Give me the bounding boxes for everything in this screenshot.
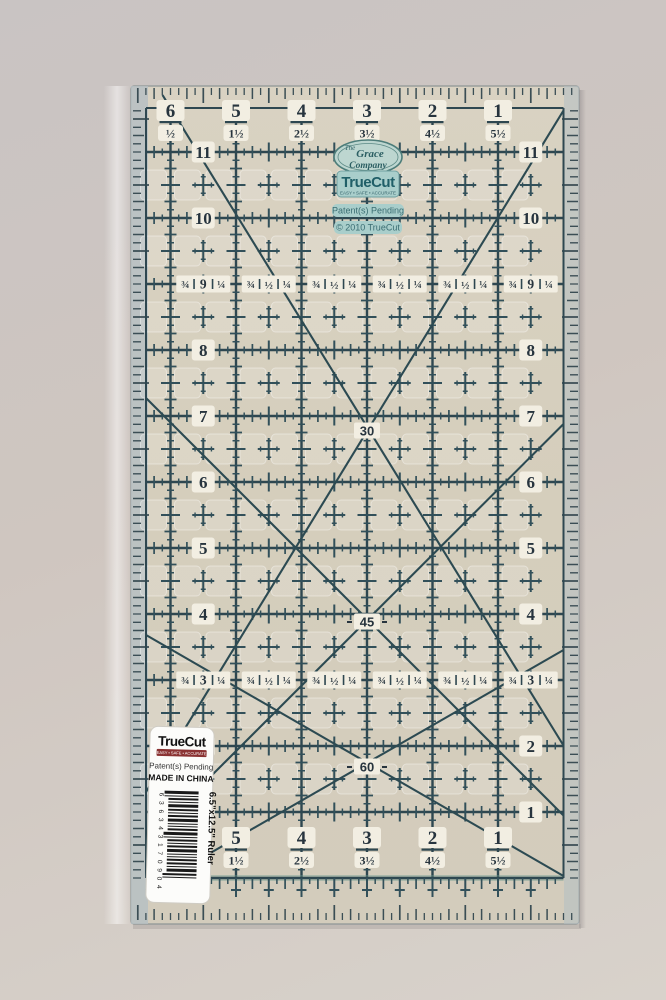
- row-number-left: 11: [195, 143, 211, 162]
- grace-company-logo: TheGraceCompany: [334, 140, 402, 174]
- fraction-separator: [277, 279, 279, 289]
- wall-highlight: [104, 86, 130, 924]
- fraction-left: ¾: [378, 279, 386, 291]
- fraction-separator: [521, 675, 523, 685]
- bottom-number: 2: [428, 828, 438, 849]
- ruler-shadow: [579, 90, 586, 928]
- fraction-separator: [455, 279, 457, 289]
- barcode-digit: 3: [156, 835, 163, 839]
- sticker-product-name: 6.5"x12.5" Ruler: [205, 792, 218, 865]
- fraction-separator: [343, 279, 345, 289]
- number-underline: [291, 849, 313, 851]
- fraction-right: ¼: [545, 279, 553, 291]
- top-fraction: 2½: [294, 127, 309, 141]
- fraction-separator: [408, 675, 410, 685]
- fraction-right: ¼: [479, 279, 487, 291]
- bottom-fraction: 4½: [425, 854, 440, 868]
- bottom-number: 5: [231, 828, 241, 849]
- truecut-logo-text: TrueCut: [341, 174, 395, 191]
- fraction-left: ¾: [509, 675, 517, 687]
- top-fraction: 1½: [229, 127, 244, 141]
- fraction-center: ½: [461, 280, 469, 292]
- row-number-right: 6: [527, 473, 536, 492]
- fraction-right: ¼: [283, 675, 291, 687]
- fraction-right: ¼: [414, 279, 422, 291]
- fraction-right: ¼: [348, 279, 356, 291]
- fraction-left: ¾: [378, 675, 386, 687]
- number-underline: [422, 849, 444, 851]
- fraction-separator: [455, 675, 457, 685]
- fraction-center: ½: [396, 676, 404, 688]
- fraction-right: ¼: [545, 675, 553, 687]
- angle-label-30: 30: [354, 423, 380, 439]
- row-number-right: 5: [527, 539, 536, 558]
- fraction-left: ¾: [181, 675, 189, 687]
- row-number-right: 10: [522, 209, 539, 228]
- fraction-right: ¼: [283, 279, 291, 291]
- fraction-separator: [259, 675, 261, 685]
- fraction-row-number: 9: [200, 277, 207, 292]
- barcode-digit: 3: [157, 801, 164, 805]
- patent-text: Patent(s) Pending: [332, 206, 404, 216]
- fraction-separator: [193, 675, 195, 685]
- angle-number: 30: [360, 424, 374, 439]
- right-edge-strip: [564, 86, 579, 924]
- ruler-shadow-bottom: [133, 924, 581, 929]
- row-number-right: 4: [527, 605, 536, 624]
- fraction-separator: [390, 675, 392, 685]
- row-number-left: 10: [195, 209, 212, 228]
- patent-badge: Patent(s) Pending: [332, 204, 404, 217]
- fraction-right: ¼: [348, 675, 356, 687]
- fraction-separator: [343, 675, 345, 685]
- number-underline: [225, 849, 247, 851]
- number-underline: [225, 121, 247, 123]
- angle-number: 60: [360, 760, 374, 775]
- barcode-digit: 0: [155, 877, 162, 881]
- top-fraction: 4½: [425, 127, 440, 141]
- fraction-left: ¾: [312, 675, 320, 687]
- ruler-photo: 6½51½42½33½24½15½51½42½33½24½15½11111010…: [0, 0, 666, 1000]
- angle-dash: [382, 766, 387, 768]
- fraction-right: ¼: [217, 675, 225, 687]
- number-underline: [422, 121, 444, 123]
- barcode-digit: 4: [155, 885, 162, 889]
- row-number-left: 8: [199, 341, 208, 360]
- fraction-separator: [539, 279, 541, 289]
- row-number-right: 2: [527, 737, 536, 756]
- fraction-center: ½: [265, 676, 273, 688]
- fraction-row-number: 3: [527, 673, 534, 688]
- fraction-separator: [212, 675, 214, 685]
- barcode-digit: 7: [156, 851, 163, 855]
- row-number-right: 1: [527, 803, 536, 822]
- fraction-separator: [259, 279, 261, 289]
- top-number: 2: [428, 101, 438, 122]
- bottom-number: 4: [297, 828, 307, 849]
- number-underline: [487, 121, 509, 123]
- fraction-left: ¾: [312, 279, 320, 291]
- top-number: 5: [231, 101, 241, 122]
- bottom-fraction: 1½: [229, 854, 244, 868]
- barcode-digit: 1: [156, 843, 163, 847]
- fraction-center: ½: [265, 280, 273, 292]
- number-underline: [160, 121, 182, 123]
- angle-number: 45: [360, 615, 374, 630]
- fraction-center: ½: [461, 676, 469, 688]
- top-fraction: 3½: [360, 127, 375, 141]
- logo-text: The: [345, 144, 356, 152]
- fraction-separator: [390, 279, 392, 289]
- row-number-left: 4: [199, 605, 208, 624]
- fraction-separator: [474, 675, 476, 685]
- top-number: 3: [362, 101, 372, 122]
- barcode-digit: 3: [157, 818, 164, 822]
- fraction-center: ½: [330, 676, 338, 688]
- bottom-number: 1: [493, 828, 503, 849]
- number-underline: [356, 849, 378, 851]
- row-number-right: 11: [523, 143, 539, 162]
- fraction-left: ¾: [443, 279, 451, 291]
- barcode-digit: 9: [155, 868, 162, 872]
- angle-dash: [347, 621, 352, 623]
- fraction-left: ¾: [247, 279, 255, 291]
- number-underline: [356, 121, 378, 123]
- fraction-left: ¾: [509, 279, 517, 291]
- fraction-separator: [324, 675, 326, 685]
- fraction-right: ¼: [217, 279, 225, 291]
- fraction-row-number: 3: [200, 673, 207, 688]
- top-fraction: ½: [166, 127, 175, 141]
- fraction-left: ¾: [247, 675, 255, 687]
- bottom-fraction: 3½: [360, 854, 375, 868]
- top-number: 6: [166, 101, 176, 122]
- copyright-text: © 2010 TrueCut: [336, 223, 400, 233]
- copyright-badge: © 2010 TrueCut: [334, 221, 402, 234]
- row-number-left: 5: [199, 539, 208, 558]
- barcode-digit: 6: [157, 809, 164, 813]
- fraction-separator: [521, 279, 523, 289]
- row-number-right: 7: [527, 407, 536, 426]
- fraction-right: ¼: [414, 675, 422, 687]
- sticker-origin: MADE IN CHINA: [148, 772, 213, 784]
- angle-dash: [382, 621, 387, 623]
- barcode-digit: 6: [157, 793, 164, 797]
- logo-text: Grace: [356, 148, 384, 160]
- product-sticker: TrueCutEASY • SAFE • ACCURATEPatent(s) P…: [145, 726, 219, 904]
- truecut-badge: TrueCutEASY • SAFE • ACCURATE: [337, 171, 399, 197]
- fraction-left: ¾: [443, 675, 451, 687]
- sticker-truecut-logo: TrueCut: [158, 733, 207, 749]
- fraction-left: ¾: [181, 279, 189, 291]
- truecut-tagline: EASY • SAFE • ACCURATE: [340, 191, 396, 196]
- fraction-separator: [474, 279, 476, 289]
- number-underline: [291, 121, 313, 123]
- angle-dash: [347, 766, 352, 768]
- fraction-separator: [277, 675, 279, 685]
- logo-text: Company: [349, 161, 387, 171]
- top-fraction: 5½: [491, 127, 506, 141]
- fraction-separator: [212, 279, 214, 289]
- fraction-center: ½: [396, 280, 404, 292]
- fraction-row-number: 9: [527, 277, 534, 292]
- top-number: 1: [493, 101, 503, 122]
- fraction-right: ¼: [479, 675, 487, 687]
- photo-background: 6½51½42½33½24½15½51½42½33½24½15½11111010…: [0, 0, 666, 1000]
- fraction-separator: [408, 279, 410, 289]
- row-number-left: 6: [199, 473, 208, 492]
- fraction-separator: [193, 279, 195, 289]
- fraction-separator: [324, 279, 326, 289]
- top-number: 4: [297, 101, 307, 122]
- bottom-fraction: 5½: [491, 854, 506, 868]
- bottom-fraction: 2½: [294, 854, 309, 868]
- barcode-digit: 4: [157, 826, 164, 830]
- number-underline: [487, 849, 509, 851]
- row-number-right: 8: [527, 341, 536, 360]
- fraction-separator: [539, 675, 541, 685]
- bottom-number: 3: [362, 828, 372, 849]
- fraction-center: ½: [330, 280, 338, 292]
- sticker-patent: Patent(s) Pending: [149, 761, 213, 772]
- barcode-digit: 0: [156, 860, 163, 864]
- row-number-left: 7: [199, 407, 208, 426]
